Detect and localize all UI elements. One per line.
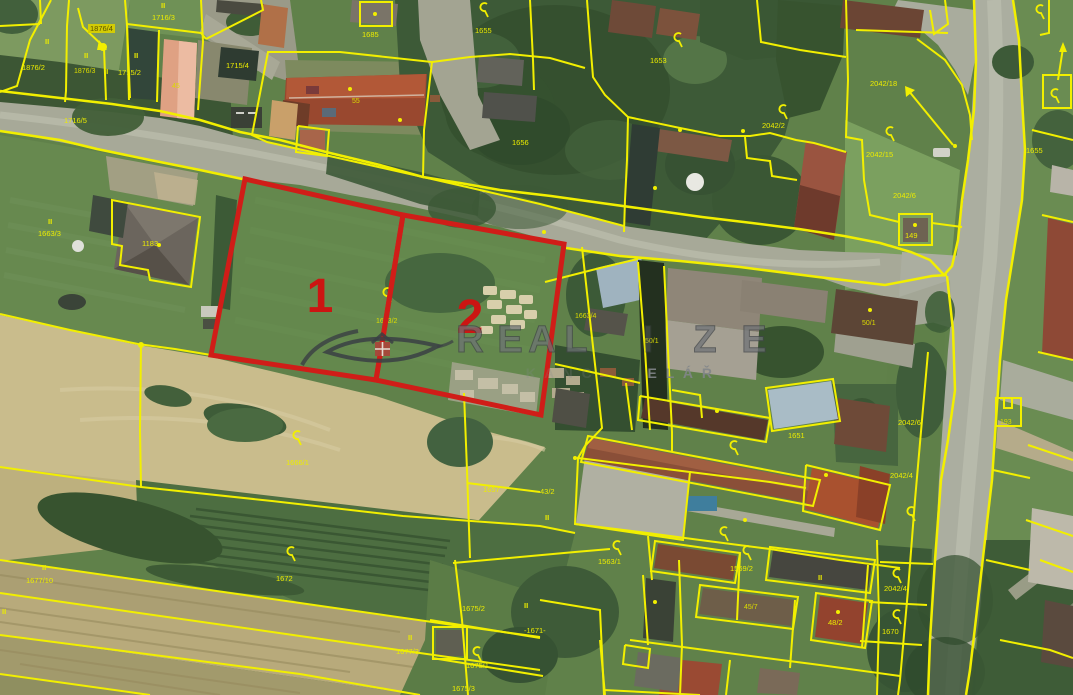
svg-text:1569/2: 1569/2 [730, 564, 753, 573]
svg-text:II: II [48, 217, 52, 226]
svg-text:45: 45 [172, 83, 180, 90]
svg-text:II: II [104, 67, 108, 76]
svg-text:1563/1: 1563/1 [598, 557, 621, 566]
svg-text:1183: 1183 [142, 239, 158, 248]
svg-text:E L Á Ř: E L Á Ř [647, 364, 714, 381]
svg-text:II: II [2, 607, 6, 616]
svg-text:1663/3: 1663/3 [38, 229, 61, 238]
svg-text:50/1: 50/1 [862, 320, 876, 327]
svg-text:1670: 1670 [882, 627, 899, 636]
svg-text:55: 55 [352, 98, 360, 105]
svg-text:2042/4: 2042/4 [890, 471, 913, 480]
svg-text:II: II [524, 601, 528, 610]
svg-text:1685: 1685 [362, 30, 379, 39]
svg-text:2042/6: 2042/6 [893, 191, 916, 200]
svg-text:1651: 1651 [788, 431, 805, 440]
svg-text:1677/10: 1677/10 [26, 576, 53, 585]
svg-text:2042/18: 2042/18 [870, 79, 897, 88]
svg-text:Z: Z [693, 319, 716, 361]
svg-text:193: 193 [1000, 419, 1012, 426]
svg-text:1876/3: 1876/3 [74, 68, 96, 75]
svg-text:149: 149 [905, 231, 918, 240]
svg-text:1675/2: 1675/2 [462, 604, 485, 613]
svg-text:1716/3: 1716/3 [152, 13, 175, 22]
svg-text:-1671-: -1671- [524, 626, 546, 635]
svg-text:43/2: 43/2 [540, 487, 555, 496]
svg-text:1876/4: 1876/4 [90, 24, 113, 33]
svg-text:2042/15: 2042/15 [866, 150, 893, 159]
svg-text:II: II [42, 563, 46, 572]
svg-text:II: II [134, 51, 138, 60]
svg-text:1715/4: 1715/4 [226, 61, 249, 70]
svg-text:L: L [564, 319, 587, 361]
svg-text:1666/1: 1666/1 [286, 458, 309, 467]
svg-text:45/7: 45/7 [744, 604, 758, 611]
svg-text:E: E [741, 319, 766, 361]
svg-text:I: I [643, 319, 654, 361]
svg-text:1716/5: 1716/5 [64, 116, 87, 125]
svg-text:1677/3: 1677/3 [396, 647, 419, 656]
svg-text:2042/4: 2042/4 [884, 584, 907, 593]
svg-text:1: 1 [307, 270, 334, 323]
svg-text:II: II [45, 37, 49, 46]
svg-text:II: II [84, 51, 88, 60]
svg-text:1672: 1672 [276, 574, 293, 583]
svg-text:II: II [408, 633, 412, 642]
svg-text:1655: 1655 [1026, 146, 1043, 155]
svg-text:II: II [161, 1, 165, 10]
svg-text:1655: 1655 [475, 26, 492, 35]
svg-text:A: A [528, 319, 555, 361]
svg-text:48/2: 48/2 [828, 618, 843, 627]
svg-text:II: II [818, 573, 822, 582]
svg-text:2042/6: 2042/6 [898, 418, 921, 427]
svg-text:1657: 1657 [483, 485, 500, 494]
svg-text:R: R [456, 319, 483, 361]
svg-text:1715/2: 1715/2 [118, 68, 141, 77]
svg-text:1653: 1653 [650, 56, 667, 65]
svg-text:II: II [545, 513, 549, 522]
svg-text:1675/1: 1675/1 [466, 661, 489, 670]
svg-text:K A N C: K A N C [526, 365, 595, 381]
svg-text:1675/3: 1675/3 [452, 684, 475, 693]
svg-text:1876/2: 1876/2 [22, 63, 45, 72]
svg-text:2042/2: 2042/2 [762, 121, 785, 130]
svg-text:E: E [497, 319, 522, 361]
svg-text:1656: 1656 [512, 138, 529, 147]
